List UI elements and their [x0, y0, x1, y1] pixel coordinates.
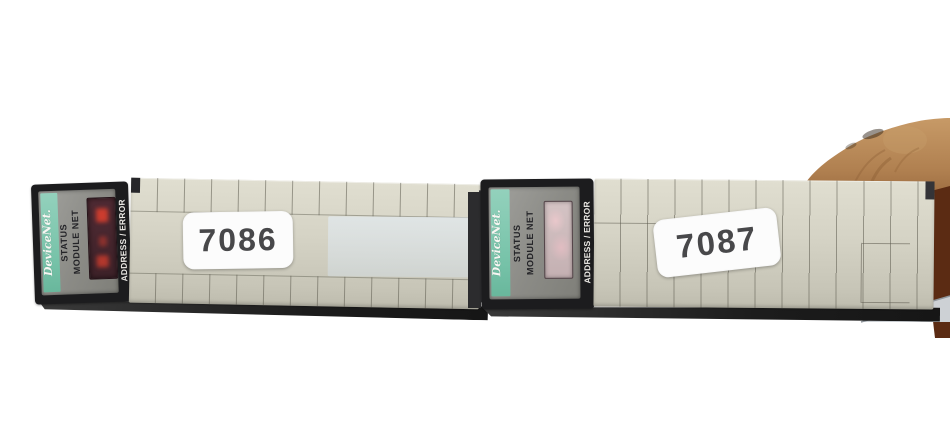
module-net-label: MODULE NET: [70, 190, 83, 294]
tag-number: 7086: [198, 221, 278, 259]
knuckle-highlight: [883, 126, 927, 154]
faceplate-panel: DeviceNet. STATUS MODULE NET: [38, 189, 119, 296]
brand-stripe: DeviceNet.: [40, 193, 60, 293]
brand-stripe: DeviceNet.: [491, 189, 511, 296]
tag-number: 7087: [674, 219, 759, 266]
brand-label: DeviceNet.: [491, 189, 503, 296]
devicenet-faceplate: DeviceNet. STATUS MODULE NET ADDRESS / E…: [480, 179, 594, 310]
rear-connector: [468, 192, 481, 308]
led-display-window: [86, 197, 118, 280]
module-net-label: MODULE NET: [526, 187, 536, 299]
inventory-sticker: 7086: [183, 211, 294, 270]
address-error-label: ADDRESS / ERROR: [117, 187, 129, 293]
module-7086: DeviceNet. STATUS MODULE NET ADDRESS / E…: [30, 178, 482, 320]
faceplate-panel: DeviceNet. STATUS MODULE NET: [489, 187, 581, 300]
module-7087: DeviceNet. STATUS MODULE NET ADDRESS / E…: [468, 174, 950, 326]
brand-label: DeviceNet.: [40, 193, 54, 292]
module-body: 7087: [593, 179, 934, 310]
status-label: STATUS: [513, 187, 523, 299]
covered-display-window: [544, 201, 574, 279]
end-cap: [925, 181, 934, 199]
vent-slots-top: [131, 178, 482, 219]
tape-residue: [328, 216, 473, 277]
module-body: 7086: [129, 178, 481, 310]
panel-outline: [860, 243, 910, 303]
address-error-label: ADDRESS / ERROR: [582, 187, 591, 299]
photo-stage: DeviceNet. STATUS MODULE NET ADDRESS / E…: [0, 0, 950, 447]
devicenet-faceplate: DeviceNet. STATUS MODULE NET ADDRESS / E…: [31, 181, 132, 304]
